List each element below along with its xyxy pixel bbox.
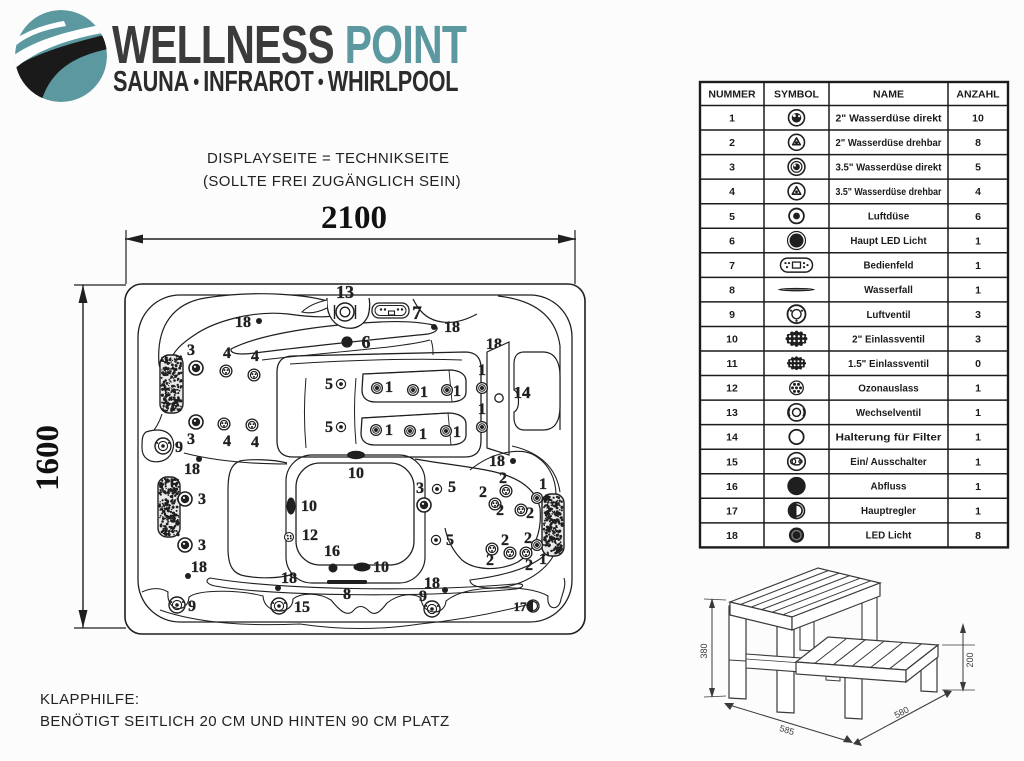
svg-text:15: 15: [294, 599, 310, 616]
svg-text:2" Wasserdüse direkt: 2" Wasserdüse direkt: [836, 113, 943, 124]
svg-text:15: 15: [726, 456, 738, 468]
svg-text:1: 1: [975, 407, 981, 419]
svg-text:1: 1: [729, 113, 735, 125]
svg-text:18: 18: [184, 461, 200, 478]
svg-text:1: 1: [478, 401, 486, 418]
svg-text:4: 4: [251, 348, 259, 365]
svg-text:16: 16: [324, 543, 340, 560]
svg-text:18: 18: [235, 314, 251, 331]
svg-text:3: 3: [198, 537, 206, 554]
svg-text:Hauptregler: Hauptregler: [861, 506, 916, 517]
svg-text:Abfluss: Abfluss: [871, 482, 907, 493]
svg-text:Haupt LED Licht: Haupt LED Licht: [850, 236, 927, 247]
svg-text:NUMMER: NUMMER: [708, 89, 756, 101]
svg-text:7: 7: [729, 260, 735, 272]
svg-text:Luftventil: Luftventil: [866, 310, 910, 321]
svg-text:585: 585: [778, 723, 795, 737]
svg-text:10: 10: [726, 334, 738, 346]
svg-text:1: 1: [385, 422, 393, 439]
svg-text:3: 3: [198, 491, 206, 508]
svg-text:9: 9: [729, 309, 735, 321]
svg-text:2: 2: [526, 505, 534, 522]
svg-text:1: 1: [975, 284, 981, 296]
svg-text:4: 4: [223, 345, 231, 362]
svg-text:200: 200: [965, 652, 975, 667]
svg-text:18: 18: [191, 559, 207, 576]
svg-text:12: 12: [726, 383, 738, 395]
svg-text:1600: 1600: [30, 425, 66, 491]
svg-text:1: 1: [975, 383, 981, 395]
svg-text:5: 5: [325, 376, 333, 393]
svg-text:0: 0: [975, 358, 981, 370]
svg-text:9: 9: [175, 439, 183, 456]
svg-text:Bedienfeld: Bedienfeld: [863, 261, 913, 272]
svg-text:2: 2: [479, 484, 487, 501]
svg-text:Halterung für Filter: Halterung für Filter: [836, 433, 942, 444]
svg-text:10: 10: [348, 465, 364, 482]
svg-text:1: 1: [453, 383, 461, 400]
svg-text:2" Wasserdüse drehbar: 2" Wasserdüse drehbar: [836, 138, 942, 149]
svg-text:5: 5: [729, 211, 735, 223]
svg-text:10: 10: [373, 559, 389, 576]
svg-text:2: 2: [486, 552, 494, 569]
svg-text:Wechselventil: Wechselventil: [856, 408, 921, 419]
svg-text:2: 2: [729, 137, 735, 149]
svg-text:9: 9: [188, 598, 196, 615]
svg-text:8: 8: [975, 137, 981, 149]
svg-text:6: 6: [729, 235, 735, 247]
svg-text:8: 8: [729, 284, 735, 296]
svg-text:14: 14: [514, 383, 532, 402]
svg-text:2: 2: [501, 532, 509, 549]
svg-text:4: 4: [975, 186, 981, 198]
svg-text:1: 1: [975, 432, 981, 444]
svg-text:SYMBOL: SYMBOL: [774, 89, 820, 101]
svg-text:18: 18: [489, 453, 505, 470]
svg-text:6: 6: [362, 332, 371, 352]
svg-text:12: 12: [302, 527, 318, 544]
svg-text:NAME: NAME: [873, 89, 904, 101]
svg-text:1: 1: [539, 551, 547, 568]
svg-text:4: 4: [729, 186, 735, 198]
svg-text:1: 1: [539, 476, 547, 493]
svg-text:10: 10: [301, 498, 317, 515]
svg-text:2: 2: [524, 530, 532, 547]
svg-text:1.5" Einlassventil: 1.5" Einlassventil: [848, 359, 929, 370]
svg-text:2: 2: [525, 557, 533, 574]
svg-text:2100: 2100: [321, 200, 387, 236]
svg-text:13: 13: [726, 407, 738, 419]
svg-text:1: 1: [975, 235, 981, 247]
svg-text:1: 1: [478, 362, 486, 379]
svg-text:8: 8: [975, 530, 981, 542]
svg-text:16: 16: [726, 481, 738, 493]
svg-text:1: 1: [420, 384, 428, 401]
svg-text:Wasserfall: Wasserfall: [864, 285, 913, 296]
svg-text:580: 580: [893, 704, 911, 720]
svg-text:10: 10: [972, 113, 984, 125]
svg-text:5: 5: [975, 162, 981, 174]
svg-text:5: 5: [448, 479, 456, 496]
svg-text:380: 380: [699, 643, 709, 658]
svg-text:13: 13: [336, 282, 354, 302]
svg-text:3: 3: [975, 309, 981, 321]
svg-text:1: 1: [975, 481, 981, 493]
svg-text:14: 14: [726, 432, 738, 444]
svg-text:11: 11: [726, 358, 737, 370]
svg-text:1: 1: [453, 424, 461, 441]
svg-text:5: 5: [325, 419, 333, 436]
svg-text:Luftdüse: Luftdüse: [868, 212, 910, 223]
svg-text:3.5" Wasserdüse direkt: 3.5" Wasserdüse direkt: [836, 163, 943, 174]
svg-text:1: 1: [385, 379, 393, 396]
svg-text:LED Licht: LED Licht: [866, 531, 912, 542]
svg-text:17: 17: [726, 505, 738, 517]
svg-text:3: 3: [416, 480, 424, 497]
svg-text:18: 18: [424, 575, 440, 592]
svg-text:Ein/ Ausschalter: Ein/ Ausschalter: [850, 457, 927, 468]
svg-text:3: 3: [187, 431, 195, 448]
svg-text:2" Einlassventil: 2" Einlassventil: [852, 334, 925, 345]
svg-text:ANZAHL: ANZAHL: [956, 89, 1000, 101]
svg-text:18: 18: [281, 570, 297, 587]
svg-text:4: 4: [223, 433, 231, 450]
svg-text:5: 5: [446, 532, 454, 549]
svg-text:3: 3: [729, 162, 735, 174]
svg-text:2: 2: [499, 470, 507, 487]
svg-text:1: 1: [419, 426, 427, 443]
svg-text:3: 3: [975, 334, 981, 346]
svg-text:3.5" Wasserdüse drehbar: 3.5" Wasserdüse drehbar: [836, 187, 942, 198]
svg-text:2: 2: [496, 502, 504, 519]
svg-text:Ozonauslass: Ozonauslass: [858, 383, 919, 394]
svg-text:3: 3: [187, 342, 195, 359]
svg-text:1: 1: [975, 260, 981, 272]
svg-text:18: 18: [726, 530, 738, 542]
svg-text:1: 1: [975, 456, 981, 468]
svg-text:6: 6: [975, 211, 981, 223]
svg-text:1: 1: [975, 505, 981, 517]
svg-text:4: 4: [251, 434, 259, 451]
